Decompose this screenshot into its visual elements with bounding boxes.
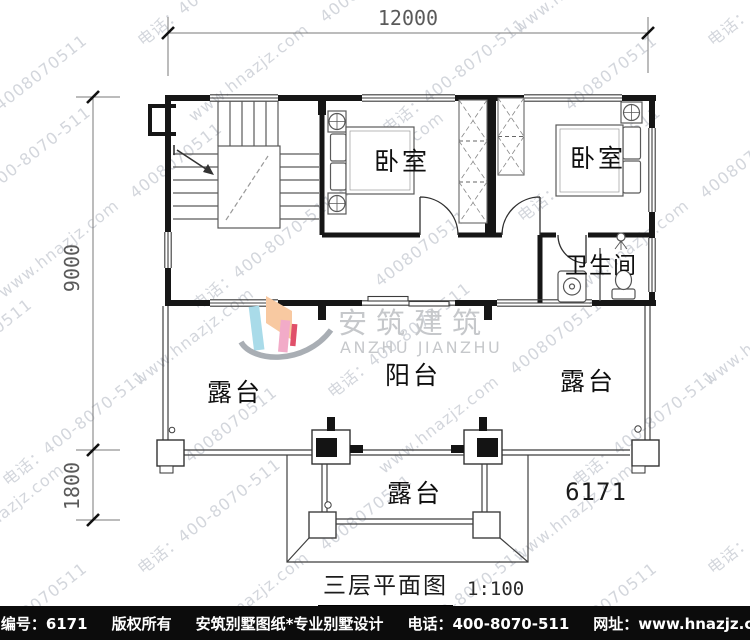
- logo-mark: [238, 296, 334, 366]
- label-terrace-left: 露台: [207, 373, 263, 409]
- footer-phone: 电话：400-8070-511: [407, 613, 569, 634]
- label-bathroom: 卫生间: [565, 246, 637, 280]
- staircase: [173, 101, 319, 228]
- drawing-scale: 1:100: [467, 578, 524, 600]
- drawing-title: 三层平面图: [318, 566, 453, 609]
- footer-company: 安筑别墅图纸*专业别墅设计: [196, 613, 384, 634]
- label-balcony: 阳台: [385, 356, 441, 392]
- title-block: 三层平面图 1:100: [318, 566, 524, 609]
- company-logo: 安筑建筑 ANZHU JIANZHU: [238, 296, 500, 370]
- floor-plan-canvas: www.hnazjz.com电话：400-8070-5114008070511w…: [0, 0, 750, 640]
- footer-drawing-number: 本图编号：6171: [0, 613, 88, 634]
- dim-width-total: 12000: [378, 6, 438, 30]
- footer-bar: 本图编号：6171 版权所有 安筑别墅图纸*专业别墅设计 电话：400-8070…: [0, 606, 750, 640]
- label-terrace-bottom: 露台: [387, 474, 443, 510]
- logo-name-en: ANZHU JIANZHU: [340, 338, 502, 357]
- logo-name-cn: 安筑建筑: [338, 300, 490, 342]
- label-bedroom-right: 卧室: [570, 139, 626, 175]
- dim-height-main: 9000: [60, 244, 84, 292]
- corner-posts: [157, 440, 659, 473]
- plan-number: 6171: [565, 478, 627, 506]
- dim-height-terrace: 1800: [60, 462, 84, 510]
- footer-copyright: 版权所有: [112, 613, 172, 634]
- label-terrace-right: 露台: [560, 362, 616, 398]
- columns: [312, 417, 502, 464]
- footer-website: 网址：www.hnazjz.com: [593, 613, 750, 634]
- logo-bar-cyan: [249, 306, 265, 351]
- label-bedroom-center: 卧室: [374, 142, 430, 178]
- doors: [420, 197, 586, 263]
